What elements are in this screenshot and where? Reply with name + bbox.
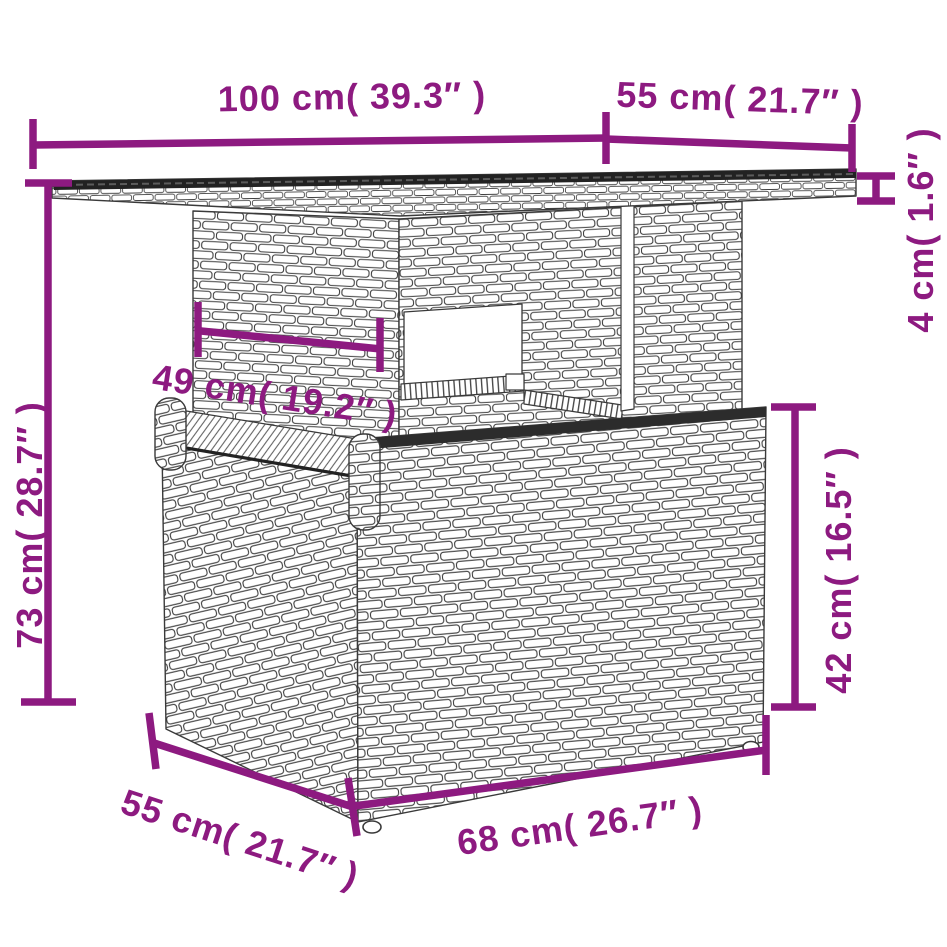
dim-label-tabletop-depth: 55 cm( 21.7″ ) <box>616 74 865 125</box>
column-window <box>404 304 522 388</box>
base-corner-post-back <box>155 398 186 470</box>
dim-line-base-height <box>771 407 816 707</box>
dim-label-tabletop-width: 100 cm( 39.3″ ) <box>217 74 486 121</box>
storage-base <box>155 398 766 833</box>
dim-line-tabletop-thickness <box>857 176 895 201</box>
dim-line-tabletop-depth <box>606 124 852 172</box>
dim-label-overall-height: 73 cm( 28.7″ ) <box>9 401 51 648</box>
diagram-canvas: 100 cm( 39.3″ ) 55 cm( 21.7″ ) 4 cm( 1.6… <box>0 0 947 947</box>
table-drawing <box>52 169 856 833</box>
dim-label-base-height: 42 cm( 16.5″ ) <box>818 446 860 693</box>
base-foot-front <box>363 821 381 833</box>
dim-line-tabletop-width <box>33 112 608 169</box>
base-corner-post-front <box>349 434 380 530</box>
dim-label-tabletop-thickness: 4 cm( 1.6″ ) <box>900 127 942 332</box>
column-slot <box>621 203 634 411</box>
